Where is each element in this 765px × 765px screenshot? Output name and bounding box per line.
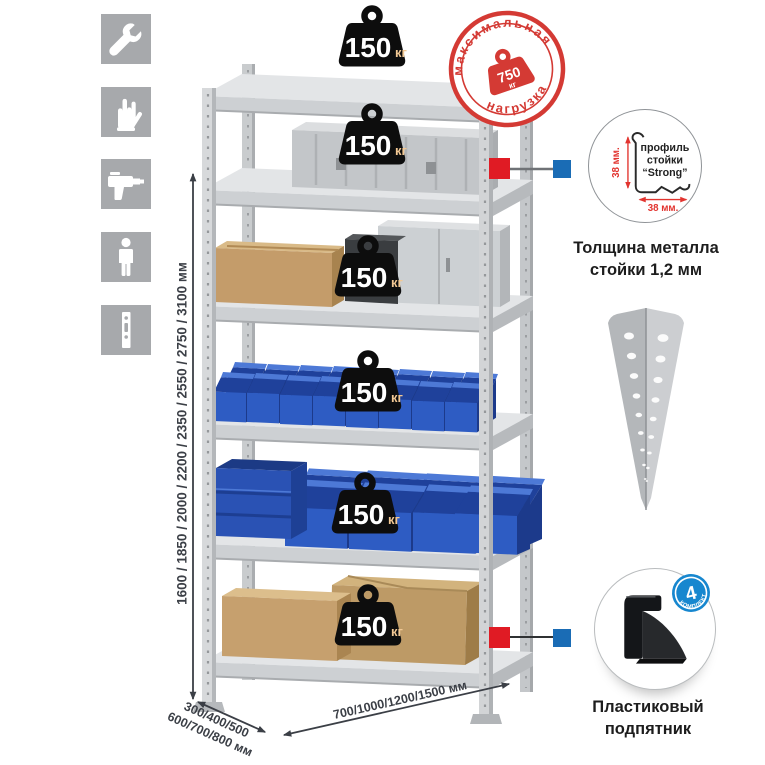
perforated-post-icon [101,305,151,355]
profile-height-dim: 38 мм. [611,147,622,178]
profile-label-1: профиль [641,142,690,154]
weight-handle-icon [365,9,380,24]
profile-caption-line2: стойки 1,2 мм [565,260,727,282]
profile-caption: Толщина металла стойки 1,2 мм [565,238,727,282]
tile-post [101,305,151,355]
load-unit: кг [391,390,404,405]
shelf-load-badge-4: 150 кг [318,349,418,415]
connector-red-square-bottom [489,627,510,648]
foot-caption-line1: Пластиковый [567,697,729,719]
load-value: 150 [341,262,388,293]
profile-width-dim: 38 мм. [648,203,679,214]
load-unit: кг [388,512,401,527]
shelf-load-badge-1: 150 кг [322,4,422,70]
gloves-icon [101,87,151,137]
load-value: 150 [345,130,392,161]
tile-drill [101,159,151,209]
load-value: 150 [345,32,392,63]
weight-handle-icon [361,354,376,369]
shelf-load-badge-3: 150 кг [318,234,418,300]
load-unit: кг [395,45,408,60]
height-dimension-label: 1600 / 1850 / 2000 / 2200 / 2350 / 2550 … [175,164,190,704]
weight-handle-icon [361,239,376,254]
load-unit: кг [395,143,408,158]
blue-crate [216,459,307,539]
weight-handle-icon [358,476,373,491]
load-value: 150 [341,377,388,408]
profile-label-3: “Strong” [642,167,687,179]
shelving-rack-infographic: 1600 / 1850 / 2000 / 2200 / 2350 / 2550 … [0,0,765,765]
width-dimension-line [284,684,509,735]
person-icon [101,232,151,282]
connector-blue-square-top [553,160,571,178]
wrench-icon [101,14,151,64]
tile-gloves [101,87,151,137]
foot-caption: Пластиковый подпятник [567,697,729,741]
profile-label-2: стойки [647,155,683,167]
post-profile-detail: 38 мм. 38 мм. профиль стойки “Strong” [588,109,702,223]
angle-post-image [600,302,692,517]
shelf-load-badge-5: 150 кг [315,471,415,537]
tile-person [101,232,151,282]
load-unit: кг [391,275,404,290]
connector-red-square-top [489,158,510,179]
tile-wrench [101,14,151,64]
shelf-load-badge-2: 150 кг [322,102,422,168]
profile-caption-line1: Толщина металла [565,238,727,260]
load-unit: кг [391,624,404,639]
connector-blue-square-bottom [553,629,571,647]
drill-icon [101,159,151,209]
load-value: 150 [338,499,385,530]
load-value: 150 [341,611,388,642]
weight-handle-icon [361,588,376,603]
foot-caption-line2: подпятник [567,719,729,741]
shelf-load-badge-6: 150 кг [318,583,418,649]
weight-handle-icon [365,107,380,122]
